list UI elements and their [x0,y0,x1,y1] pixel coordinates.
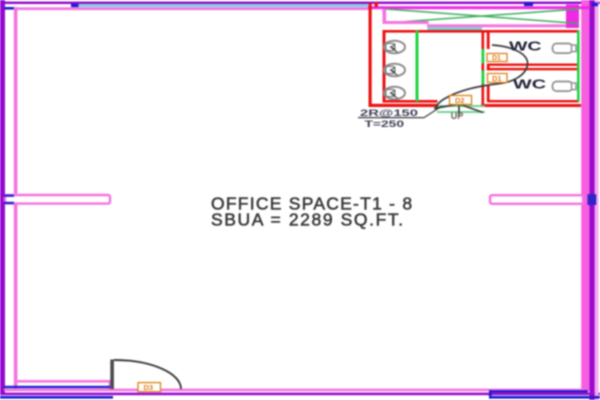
svg-text:D1: D1 [492,55,501,62]
svg-text:T=250: T=250 [365,119,405,130]
svg-text:D3: D3 [144,383,154,392]
svg-text:2R@150: 2R@150 [360,108,418,119]
svg-text:WC: WC [513,77,546,91]
svg-text:UP: UP [451,111,464,121]
svg-text:D2: D2 [455,96,465,105]
svg-text:WC: WC [509,40,542,54]
svg-text:SBUA = 2289 SQ.FT.: SBUA = 2289 SQ.FT. [211,210,405,230]
svg-text:D1: D1 [492,74,502,83]
